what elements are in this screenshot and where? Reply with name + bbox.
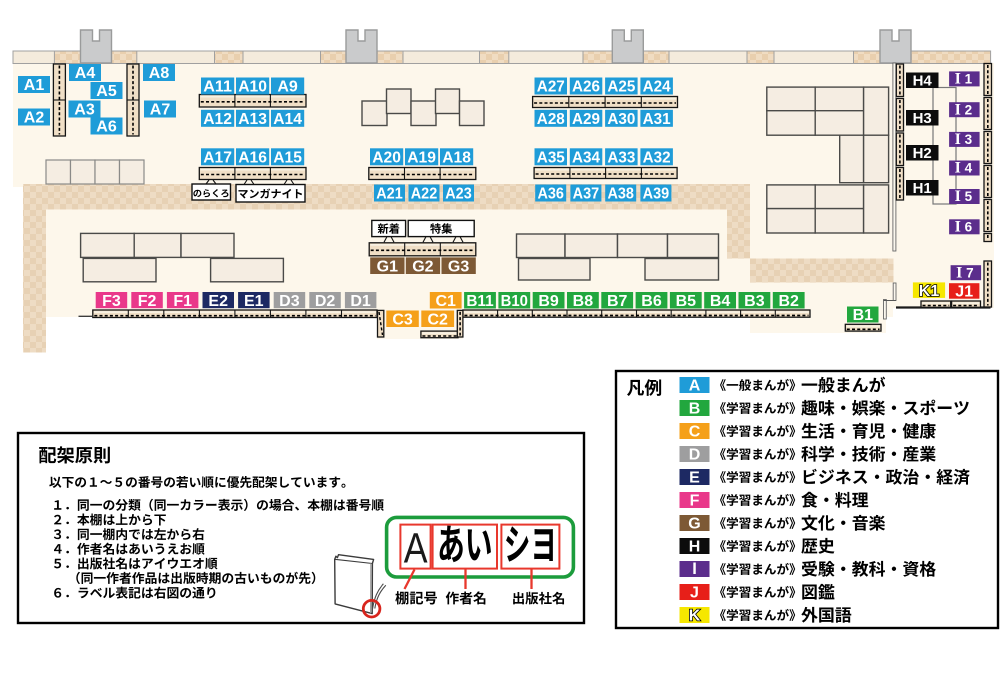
- svg-text:D3: D3: [279, 293, 300, 310]
- svg-text:A33: A33: [607, 150, 635, 167]
- svg-text:A1: A1: [24, 77, 45, 94]
- svg-text:A38: A38: [607, 186, 634, 203]
- svg-text:A15: A15: [273, 150, 302, 167]
- svg-text:A17: A17: [203, 150, 232, 167]
- svg-text:G1: G1: [377, 258, 398, 275]
- svg-text:A24: A24: [643, 79, 671, 96]
- svg-text:B6: B6: [641, 293, 662, 310]
- svg-text:B8: B8: [573, 293, 594, 310]
- svg-text:K: K: [689, 608, 701, 625]
- svg-text:D: D: [689, 447, 701, 464]
- svg-text:A11: A11: [203, 79, 232, 96]
- svg-text:A36: A36: [537, 186, 564, 203]
- svg-text:B4: B4: [710, 293, 731, 310]
- svg-text:A31: A31: [643, 111, 671, 128]
- svg-text:B5: B5: [676, 293, 697, 310]
- svg-text:I 2: I 2: [955, 101, 973, 118]
- svg-text:J: J: [690, 585, 699, 602]
- svg-text:F2: F2: [138, 293, 157, 310]
- svg-text:A: A: [689, 378, 701, 395]
- svg-text:A22: A22: [411, 186, 438, 203]
- svg-text:E: E: [689, 470, 700, 487]
- svg-text:F: F: [690, 493, 700, 510]
- svg-text:D1: D1: [350, 293, 371, 310]
- svg-text:B1: B1: [853, 307, 874, 324]
- svg-text:G2: G2: [412, 258, 433, 275]
- svg-text:C3: C3: [392, 311, 413, 328]
- svg-text:I 5: I 5: [955, 188, 973, 205]
- svg-text:F3: F3: [102, 293, 121, 310]
- svg-text:A14: A14: [273, 111, 302, 128]
- svg-text:A2: A2: [24, 110, 45, 127]
- svg-text:A10: A10: [238, 79, 267, 96]
- svg-text:A: A: [404, 524, 428, 572]
- svg-text:B2: B2: [778, 293, 799, 310]
- svg-text:A25: A25: [607, 79, 635, 96]
- svg-text:B10: B10: [501, 293, 528, 310]
- svg-text:A16: A16: [238, 150, 267, 167]
- svg-text:K1: K1: [919, 283, 940, 300]
- svg-text:H1: H1: [913, 180, 932, 197]
- svg-text:D2: D2: [315, 293, 336, 310]
- svg-text:B: B: [689, 401, 701, 418]
- svg-text:I: I: [692, 560, 697, 578]
- svg-text:B3: B3: [744, 293, 765, 310]
- svg-text:A9: A9: [277, 79, 298, 96]
- svg-text:A39: A39: [643, 186, 670, 203]
- svg-text:A27: A27: [537, 79, 565, 96]
- svg-text:I 7: I 7: [956, 264, 974, 281]
- svg-text:A28: A28: [537, 111, 565, 128]
- svg-text:I 4: I 4: [955, 160, 973, 177]
- svg-text:J1: J1: [955, 284, 973, 301]
- svg-text:A37: A37: [573, 186, 600, 203]
- svg-text:A23: A23: [445, 186, 472, 203]
- svg-text:F1: F1: [173, 293, 192, 310]
- svg-text:C2: C2: [427, 311, 448, 328]
- svg-text:H2: H2: [913, 145, 932, 162]
- svg-text:A29: A29: [572, 111, 600, 128]
- svg-text:A32: A32: [643, 150, 671, 167]
- svg-text:C1: C1: [435, 293, 456, 310]
- svg-text:A12: A12: [203, 111, 232, 128]
- svg-text:A35: A35: [537, 150, 565, 167]
- svg-text:A34: A34: [572, 150, 600, 167]
- svg-text:H4: H4: [913, 73, 933, 90]
- svg-text:H: H: [689, 539, 701, 556]
- svg-text:I 3: I 3: [955, 131, 973, 148]
- svg-text:E1: E1: [244, 293, 264, 310]
- svg-text:G3: G3: [448, 258, 469, 275]
- svg-text:A19: A19: [407, 150, 436, 167]
- svg-text:A6: A6: [96, 119, 117, 136]
- svg-text:A3: A3: [74, 102, 95, 119]
- svg-text:G: G: [688, 516, 700, 533]
- svg-text:A18: A18: [442, 150, 471, 167]
- svg-text:A26: A26: [572, 79, 600, 96]
- svg-text:A5: A5: [96, 83, 117, 100]
- svg-text:A13: A13: [238, 111, 267, 128]
- svg-text:E2: E2: [208, 293, 228, 310]
- svg-text:H3: H3: [913, 110, 932, 127]
- svg-text:A20: A20: [372, 150, 401, 167]
- svg-text:A8: A8: [149, 65, 170, 82]
- svg-text:A30: A30: [607, 111, 635, 128]
- svg-text:B11: B11: [466, 293, 493, 310]
- svg-text:I 6: I 6: [955, 219, 973, 236]
- svg-text:A7: A7: [150, 102, 171, 119]
- svg-text:A4: A4: [75, 65, 96, 82]
- svg-text:A21: A21: [376, 186, 403, 203]
- svg-text:I 1: I 1: [955, 71, 973, 88]
- svg-text:C: C: [689, 424, 701, 441]
- svg-text:B7: B7: [607, 293, 628, 310]
- svg-text:B9: B9: [538, 293, 559, 310]
